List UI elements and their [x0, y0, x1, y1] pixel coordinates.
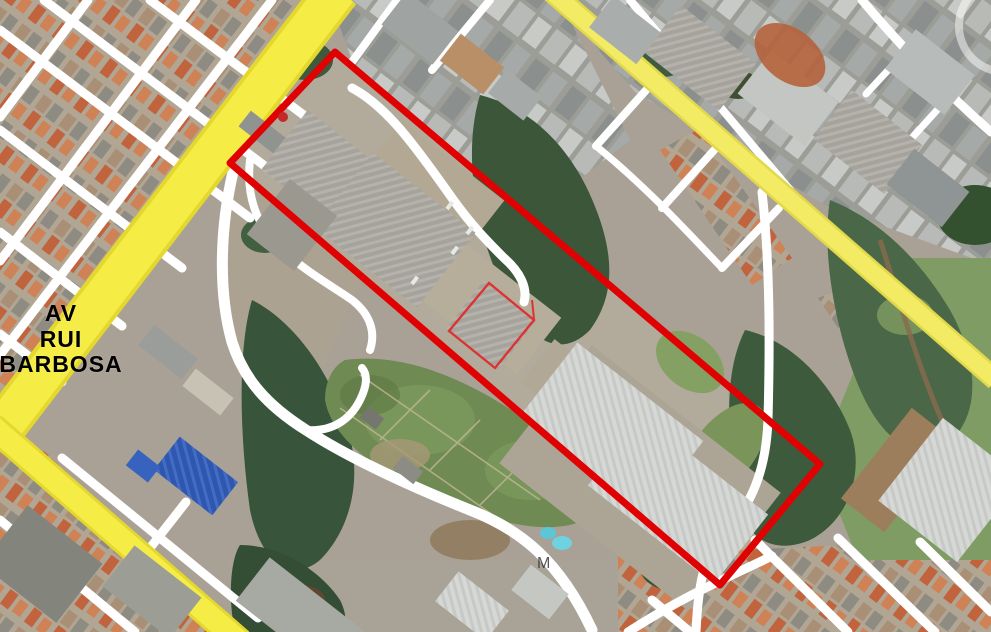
map-canvas[interactable]: [0, 0, 991, 632]
boundary-point-marker: [278, 112, 288, 122]
avenue-name-label: AV RUI BARBOSA: [0, 301, 124, 378]
site-m-marker-label: M: [537, 555, 551, 573]
satellite-map[interactable]: AV RUI BARBOSA M: [0, 0, 991, 632]
